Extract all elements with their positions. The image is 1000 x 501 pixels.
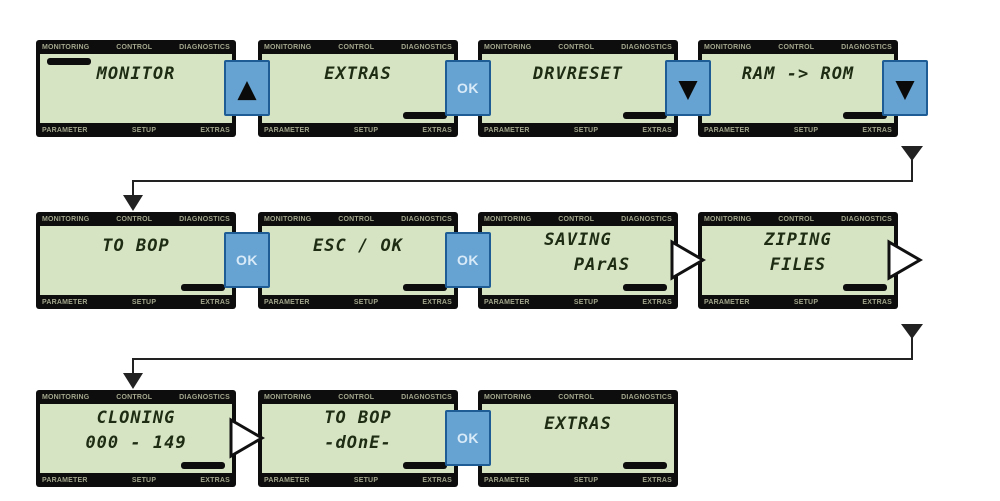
lcd-text: PArAS <box>574 257 630 274</box>
lcd-text: 000 - 149 <box>85 435 186 452</box>
label-control: CONTROL <box>338 394 374 401</box>
label-parameter: PARAMETER <box>484 477 530 484</box>
lcd-text: DRVRESET <box>533 66 623 83</box>
down-button[interactable]: ▼ <box>665 60 711 116</box>
lcd-display: DRVRESET <box>482 54 674 123</box>
label-control: CONTROL <box>778 216 814 223</box>
label-extras: EXTRAS <box>642 299 672 306</box>
menu-indicator-bar <box>403 462 447 469</box>
menu-labels-bottom: PARAMETER SETUP EXTRAS <box>698 295 898 309</box>
menu-labels-bottom: PARAMETER SETUP EXTRAS <box>258 123 458 137</box>
menu-labels-top: MONITORING CONTROL DIAGNOSTICS <box>258 390 458 404</box>
ok-button-label: OK <box>236 253 258 267</box>
menu-labels-bottom: PARAMETER SETUP EXTRAS <box>36 473 236 487</box>
menu-labels-top: MONITORING CONTROL DIAGNOSTICS <box>36 40 236 54</box>
label-control: CONTROL <box>338 216 374 223</box>
ok-button-label: OK <box>457 81 479 95</box>
bop-panel-extras-final: MONITORING CONTROL DIAGNOSTICS EXTRAS PA… <box>478 390 678 487</box>
label-setup: SETUP <box>132 127 156 134</box>
menu-indicator-bar <box>47 58 91 65</box>
lcd-text: TO BOP <box>102 238 169 255</box>
menu-indicator-bar <box>843 112 887 119</box>
lcd-text: ESC / OK <box>313 238 403 255</box>
lcd-display: EXTRAS <box>482 404 674 473</box>
menu-labels-top: MONITORING CONTROL DIAGNOSTICS <box>258 40 458 54</box>
label-extras: EXTRAS <box>642 127 672 134</box>
down-button[interactable]: ▼ <box>882 60 928 116</box>
label-monitoring: MONITORING <box>704 216 751 223</box>
label-diagnostics: DIAGNOSTICS <box>621 44 672 51</box>
label-parameter: PARAMETER <box>42 477 88 484</box>
bop-panel-to-bop-done: MONITORING CONTROL DIAGNOSTICS TO BOP -d… <box>258 390 458 487</box>
bop-panel-ziping-files: MONITORING CONTROL DIAGNOSTICS ZIPING FI… <box>698 212 898 309</box>
label-parameter: PARAMETER <box>264 127 310 134</box>
menu-labels-top: MONITORING CONTROL DIAGNOSTICS <box>478 40 678 54</box>
label-monitoring: MONITORING <box>42 394 89 401</box>
ok-button-label: OK <box>457 253 479 267</box>
up-button[interactable]: ▲ <box>224 60 270 116</box>
connector-elbow-line <box>133 336 912 375</box>
label-extras: EXTRAS <box>862 127 892 134</box>
menu-labels-top: MONITORING CONTROL DIAGNOSTICS <box>478 390 678 404</box>
down-arrow-icon: ▼ <box>895 76 914 101</box>
menu-labels-top: MONITORING CONTROL DIAGNOSTICS <box>698 40 898 54</box>
menu-labels-bottom: PARAMETER SETUP EXTRAS <box>478 473 678 487</box>
menu-indicator-bar <box>623 284 667 291</box>
label-setup: SETUP <box>132 477 156 484</box>
label-setup: SETUP <box>354 299 378 306</box>
label-monitoring: MONITORING <box>42 44 89 51</box>
label-monitoring: MONITORING <box>264 216 311 223</box>
label-extras: EXTRAS <box>862 299 892 306</box>
lcd-text: CLONING <box>97 410 176 427</box>
label-control: CONTROL <box>558 394 594 401</box>
lcd-text: EXTRAS <box>324 66 391 83</box>
label-monitoring: MONITORING <box>264 394 311 401</box>
label-diagnostics: DIAGNOSTICS <box>401 394 452 401</box>
bop-panel-cloning: MONITORING CONTROL DIAGNOSTICS CLONING 0… <box>36 390 236 487</box>
ok-button[interactable]: OK <box>445 60 491 116</box>
down-arrow-icon: ▼ <box>678 76 697 101</box>
label-monitoring: MONITORING <box>484 394 531 401</box>
bop-panel-esc-ok: MONITORING CONTROL DIAGNOSTICS ESC / OK … <box>258 212 458 309</box>
label-setup: SETUP <box>574 127 598 134</box>
label-parameter: PARAMETER <box>42 127 88 134</box>
label-setup: SETUP <box>574 477 598 484</box>
label-diagnostics: DIAGNOSTICS <box>179 216 230 223</box>
lcd-display: ZIPING FILES <box>702 226 894 295</box>
next-arrow-icon <box>886 238 924 282</box>
lcd-display: TO BOP <box>40 226 232 295</box>
lcd-display: MONITOR <box>40 54 232 123</box>
menu-indicator-bar <box>623 112 667 119</box>
bop-panel-to-bop: MONITORING CONTROL DIAGNOSTICS TO BOP PA… <box>36 212 236 309</box>
connector-arrowhead <box>123 195 143 211</box>
lcd-text: FILES <box>770 257 826 274</box>
next-arrow-icon <box>228 416 266 460</box>
menu-labels-bottom: PARAMETER SETUP EXTRAS <box>478 123 678 137</box>
lcd-display: TO BOP -dOnE- <box>262 404 454 473</box>
lcd-text: RAM -> ROM <box>742 66 854 83</box>
bop-panel-drvreset: MONITORING CONTROL DIAGNOSTICS DRVRESET … <box>478 40 678 137</box>
lcd-text: -dOnE- <box>324 435 391 452</box>
label-control: CONTROL <box>558 44 594 51</box>
label-setup: SETUP <box>354 127 378 134</box>
menu-indicator-bar <box>181 462 225 469</box>
label-setup: SETUP <box>794 127 818 134</box>
lcd-display: EXTRAS <box>262 54 454 123</box>
menu-labels-bottom: PARAMETER SETUP EXTRAS <box>258 295 458 309</box>
label-parameter: PARAMETER <box>704 127 750 134</box>
label-parameter: PARAMETER <box>264 299 310 306</box>
label-diagnostics: DIAGNOSTICS <box>841 44 892 51</box>
bop-panel-monitor: MONITORING CONTROL DIAGNOSTICS MONITOR P… <box>36 40 236 137</box>
menu-labels-bottom: PARAMETER SETUP EXTRAS <box>478 295 678 309</box>
lcd-text: ZIPING <box>764 232 831 249</box>
label-parameter: PARAMETER <box>42 299 88 306</box>
connector-arrowhead <box>123 373 143 389</box>
menu-indicator-bar <box>623 462 667 469</box>
label-diagnostics: DIAGNOSTICS <box>621 394 672 401</box>
menu-labels-top: MONITORING CONTROL DIAGNOSTICS <box>36 390 236 404</box>
label-diagnostics: DIAGNOSTICS <box>841 216 892 223</box>
label-extras: EXTRAS <box>200 127 230 134</box>
lcd-display: ESC / OK <box>262 226 454 295</box>
label-control: CONTROL <box>116 216 152 223</box>
bop-panel-ram-to-rom: MONITORING CONTROL DIAGNOSTICS RAM -> RO… <box>698 40 898 137</box>
label-monitoring: MONITORING <box>484 216 531 223</box>
menu-indicator-bar <box>181 284 225 291</box>
ok-button-label: OK <box>457 431 479 445</box>
label-setup: SETUP <box>794 299 818 306</box>
label-monitoring: MONITORING <box>42 216 89 223</box>
label-extras: EXTRAS <box>422 477 452 484</box>
lcd-display: CLONING 000 - 149 <box>40 404 232 473</box>
menu-labels-top: MONITORING CONTROL DIAGNOSTICS <box>478 212 678 226</box>
menu-indicator-bar <box>403 284 447 291</box>
label-control: CONTROL <box>116 44 152 51</box>
next-arrow-icon <box>669 238 707 282</box>
menu-labels-top: MONITORING CONTROL DIAGNOSTICS <box>698 212 898 226</box>
label-control: CONTROL <box>338 44 374 51</box>
label-parameter: PARAMETER <box>484 299 530 306</box>
label-diagnostics: DIAGNOSTICS <box>179 44 230 51</box>
ok-button[interactable]: OK <box>445 410 491 466</box>
label-setup: SETUP <box>132 299 156 306</box>
bop-cloning-flow-diagram: MONITORING CONTROL DIAGNOSTICS MONITOR P… <box>0 0 1000 501</box>
label-monitoring: MONITORING <box>484 44 531 51</box>
label-extras: EXTRAS <box>200 477 230 484</box>
menu-indicator-bar <box>843 284 887 291</box>
ok-button[interactable]: OK <box>224 232 270 288</box>
menu-labels-top: MONITORING CONTROL DIAGNOSTICS <box>258 212 458 226</box>
label-extras: EXTRAS <box>200 299 230 306</box>
ok-button[interactable]: OK <box>445 232 491 288</box>
label-setup: SETUP <box>354 477 378 484</box>
label-control: CONTROL <box>116 394 152 401</box>
menu-indicator-bar <box>403 112 447 119</box>
lcd-text: SAVING <box>544 232 611 249</box>
label-diagnostics: DIAGNOSTICS <box>179 394 230 401</box>
label-diagnostics: DIAGNOSTICS <box>401 44 452 51</box>
label-diagnostics: DIAGNOSTICS <box>621 216 672 223</box>
label-parameter: PARAMETER <box>704 299 750 306</box>
lcd-text: EXTRAS <box>544 416 611 433</box>
label-control: CONTROL <box>778 44 814 51</box>
label-extras: EXTRAS <box>422 127 452 134</box>
label-monitoring: MONITORING <box>704 44 751 51</box>
bop-panel-saving-paras: MONITORING CONTROL DIAGNOSTICS SAVING PA… <box>478 212 678 309</box>
up-arrow-icon: ▲ <box>237 76 256 101</box>
label-extras: EXTRAS <box>422 299 452 306</box>
label-parameter: PARAMETER <box>264 477 310 484</box>
lcd-text: MONITOR <box>97 66 176 83</box>
menu-labels-bottom: PARAMETER SETUP EXTRAS <box>698 123 898 137</box>
label-diagnostics: DIAGNOSTICS <box>401 216 452 223</box>
menu-labels-bottom: PARAMETER SETUP EXTRAS <box>36 123 236 137</box>
lcd-display: RAM -> ROM <box>702 54 894 123</box>
lcd-display: SAVING PArAS <box>482 226 674 295</box>
label-extras: EXTRAS <box>642 477 672 484</box>
menu-labels-top: MONITORING CONTROL DIAGNOSTICS <box>36 212 236 226</box>
label-control: CONTROL <box>558 216 594 223</box>
menu-labels-bottom: PARAMETER SETUP EXTRAS <box>36 295 236 309</box>
lcd-text: TO BOP <box>324 410 391 427</box>
connector-elbow-line <box>133 158 912 197</box>
label-parameter: PARAMETER <box>484 127 530 134</box>
label-monitoring: MONITORING <box>264 44 311 51</box>
label-setup: SETUP <box>574 299 598 306</box>
menu-labels-bottom: PARAMETER SETUP EXTRAS <box>258 473 458 487</box>
bop-panel-extras: MONITORING CONTROL DIAGNOSTICS EXTRAS PA… <box>258 40 458 137</box>
